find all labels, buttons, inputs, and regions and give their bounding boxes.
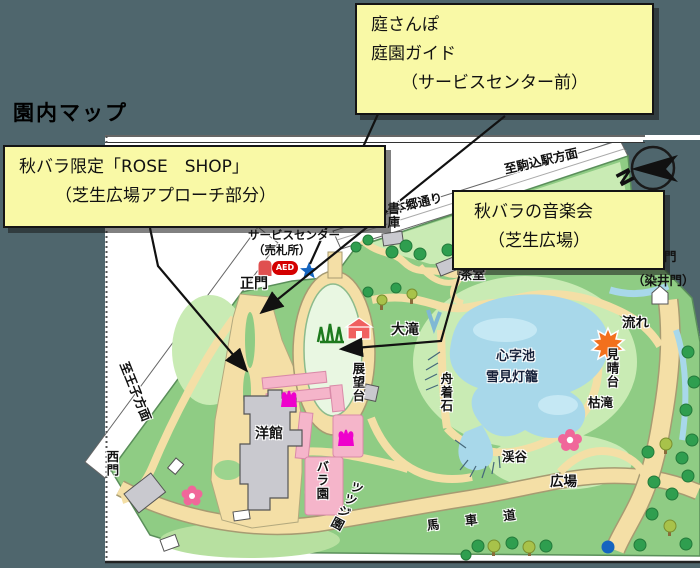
stream-label: 流れ bbox=[622, 316, 649, 332]
ticket-office-label: （売札所） bbox=[253, 244, 311, 257]
plaza-green-blob-1 bbox=[214, 460, 242, 480]
callout-concert-line2: （芝生広場） bbox=[474, 233, 651, 250]
callout-rose-concert: 秋バラの音楽会 （芝生広場） bbox=[452, 190, 665, 270]
pond-highlight-2 bbox=[538, 395, 578, 415]
callout-guide-line1: 庭さんぽ bbox=[371, 17, 640, 34]
callout-guide-line3: （サービスセンター前） bbox=[371, 75, 640, 92]
tea-house-label: 茶室 bbox=[460, 268, 485, 282]
callout-rose-shop: 秋バラ限定「ROSE SHOP」 （芝生広場アプローチ部分） bbox=[3, 145, 386, 228]
page-title: 園内マップ bbox=[13, 97, 128, 127]
book-storage-label: 書庫 bbox=[385, 202, 399, 229]
map-border-top-band bbox=[105, 137, 643, 142]
callout-guide-line2: 庭園ガイド bbox=[371, 46, 640, 63]
west-gate-label: 西門 bbox=[104, 450, 118, 477]
shinji-pond-label: 心字池 bbox=[496, 350, 535, 365]
service-center-label: サービスセンター bbox=[248, 229, 340, 242]
callout-rose-shop-line1: 秋バラ限定「ROSE SHOP」 bbox=[19, 159, 372, 176]
lookout-label: 見晴台 bbox=[604, 348, 618, 389]
boat-stone-label: 舟着石 bbox=[438, 372, 452, 413]
main-gate-arch-icon bbox=[258, 260, 272, 276]
facility-dot-icon bbox=[602, 541, 615, 554]
plaza-label: 広場 bbox=[550, 475, 577, 491]
big-waterfall-label: 大滝 bbox=[391, 322, 419, 338]
observation-deck-building bbox=[363, 384, 379, 401]
snow-lantern-label: 雪見灯籠 bbox=[486, 371, 538, 386]
callout-garden-guide: 庭さんぽ 庭園ガイド （サービスセンター前） bbox=[355, 3, 654, 115]
somei-gate-partial-label: 門 bbox=[664, 250, 677, 264]
rose-garden-label: バラ園 bbox=[314, 460, 328, 501]
park-map-page: サービスセンター （売札所） 正門 本郷通り 至駒込駅方面 至王子方面 書庫 茶… bbox=[0, 0, 700, 568]
gorge-label: 渓谷 bbox=[502, 450, 527, 464]
somei-gate-label: （染井門） bbox=[632, 274, 695, 288]
main-gate-label: 正門 bbox=[240, 276, 268, 292]
approach-median-1 bbox=[245, 312, 255, 368]
tulip-icon bbox=[281, 391, 297, 408]
western-house-label: 洋館 bbox=[255, 426, 283, 442]
small-structure-3 bbox=[233, 510, 250, 521]
aed-badge: AED bbox=[272, 261, 298, 275]
callout-rose-shop-line2: （芝生広場アプローチ部分） bbox=[19, 188, 372, 205]
dry-waterfall-label: 枯滝 bbox=[588, 396, 613, 410]
observation-deck-label: 展望台 bbox=[350, 362, 364, 403]
callout-concert-line1: 秋バラの音楽会 bbox=[474, 204, 651, 221]
pond-highlight-1 bbox=[473, 318, 537, 342]
tulip-icon bbox=[338, 430, 354, 447]
